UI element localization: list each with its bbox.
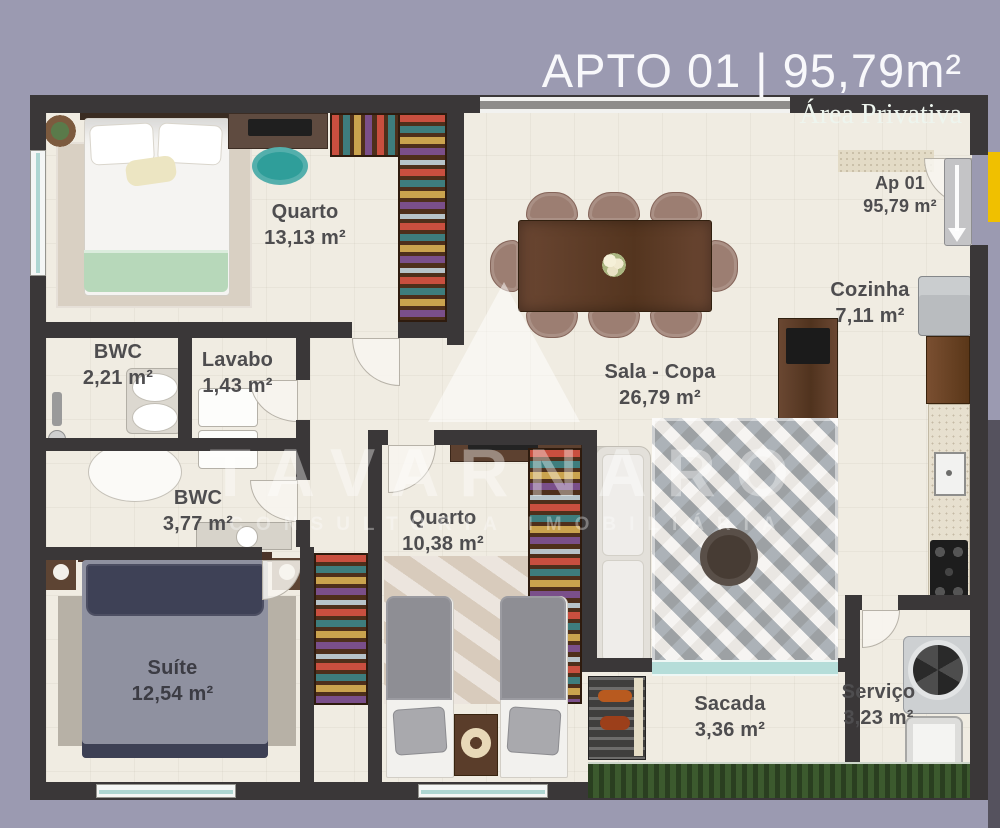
header: APTO 01 | 95,79m² Área Privativa <box>542 46 962 131</box>
page-subtitle: Área Privativa <box>542 99 962 131</box>
right-edge-shadow-strip <box>988 420 1000 828</box>
table-flowers <box>600 251 628 279</box>
desk-monitor <box>248 119 312 136</box>
room-area: 7,11 m² <box>800 304 940 330</box>
bedroom1-green-blanket <box>84 250 228 292</box>
room-name: BWC <box>48 340 188 366</box>
room-area: 26,79 m² <box>570 386 750 412</box>
room-label-suite: Suíte 12,54 m² <box>100 656 245 707</box>
room-area: 2,21 m² <box>48 366 188 392</box>
bed-single-1-duvet <box>386 596 452 700</box>
entry-arrow-head-icon <box>948 228 966 242</box>
room-name: Cozinha <box>800 278 940 304</box>
room-name: Sacada <box>655 692 805 718</box>
wall-sacada-top-b <box>838 658 845 672</box>
ottoman <box>700 528 758 586</box>
wall-sacada-top-a <box>582 658 652 672</box>
wall-suite-top <box>30 547 262 560</box>
bedroom2-wreath-decor <box>461 728 491 758</box>
bed-single-1-pillow <box>392 706 447 756</box>
room-label-sacada: Sacada 3,36 m² <box>655 692 805 743</box>
grill-side-shelf <box>634 678 643 756</box>
room-name: Lavabo <box>170 348 305 374</box>
bwc1-shower-fixture <box>52 392 62 426</box>
window-suite <box>96 784 236 798</box>
room-label-lavabo: Lavabo 1,43 m² <box>170 348 305 399</box>
room-label-cozinha: Cozinha 7,11 m² <box>800 278 940 329</box>
entry-hall-floor <box>838 150 934 172</box>
room-area: 13,13 m² <box>225 226 385 252</box>
window-pane <box>421 790 545 794</box>
room-label-bwc-suite: BWC 2,21 m² <box>48 340 188 391</box>
window-pane <box>36 153 40 273</box>
wall-bedroom1-right <box>447 95 464 345</box>
room-label-servico: Serviço 3,23 m² <box>806 680 951 731</box>
window-bedroom1 <box>30 150 46 276</box>
suite-lamp-left <box>53 564 69 580</box>
wall-outer-right-upper <box>970 95 988 155</box>
watermark-brand: TAVARNARO <box>30 434 988 512</box>
wall-bedroom1-bottom-b <box>398 322 464 338</box>
bwc1-basin-2 <box>132 403 178 432</box>
room-area: 12,54 m² <box>100 682 245 708</box>
corridor-yellow-marker <box>988 152 1000 222</box>
window-bedroom2 <box>418 784 548 798</box>
kitchen-cabinet <box>926 336 970 404</box>
wall-suite-right <box>300 547 314 800</box>
room-label-quarto-casal: Quarto 13,13 m² <box>225 200 385 251</box>
garden-grass <box>588 762 970 798</box>
watermark-tagline: CONSULTORIA IMOBILIÁRIA <box>30 514 988 536</box>
room-area: 3,36 m² <box>655 718 805 744</box>
wall-servico-top-b <box>898 595 988 610</box>
grill-food-2 <box>600 716 630 730</box>
grill-food-1 <box>598 690 632 702</box>
desk-chair <box>252 147 308 185</box>
plant <box>44 115 76 147</box>
unit-label: Ap 01 95,79 m² <box>830 172 970 218</box>
bed-single-2-pillow <box>506 706 561 756</box>
window-pane <box>99 790 233 794</box>
sofa-cushion-2 <box>602 560 644 662</box>
room-area: 3,23 m² <box>806 706 951 732</box>
room-name: Serviço <box>806 680 951 706</box>
wall-servico-top-a <box>845 595 862 610</box>
page-title: APTO 01 | 95,79m² <box>542 46 962 95</box>
floorplan-image: Quarto 13,13 m² Ap 01 95,79 m² Cozinha 7… <box>0 0 1000 828</box>
bedroom1-closet-side <box>398 113 447 322</box>
room-name: Suíte <box>100 656 245 682</box>
room-name: Sala - Copa <box>570 360 750 386</box>
suite-pillows <box>86 564 264 616</box>
wall-bedroom1-bottom-a <box>30 322 352 338</box>
unit-name: Ap 01 <box>830 172 970 195</box>
room-label-sala-copa: Sala - Copa 26,79 m² <box>570 360 750 411</box>
unit-area: 95,79 m² <box>830 195 970 218</box>
sliding-glass-door <box>652 660 838 676</box>
room-name: Quarto <box>225 200 385 226</box>
bed-single-2-duvet <box>500 596 566 700</box>
room-area: 1,43 m² <box>170 374 305 400</box>
tv-screen <box>786 328 830 364</box>
suite-closet <box>314 553 368 705</box>
